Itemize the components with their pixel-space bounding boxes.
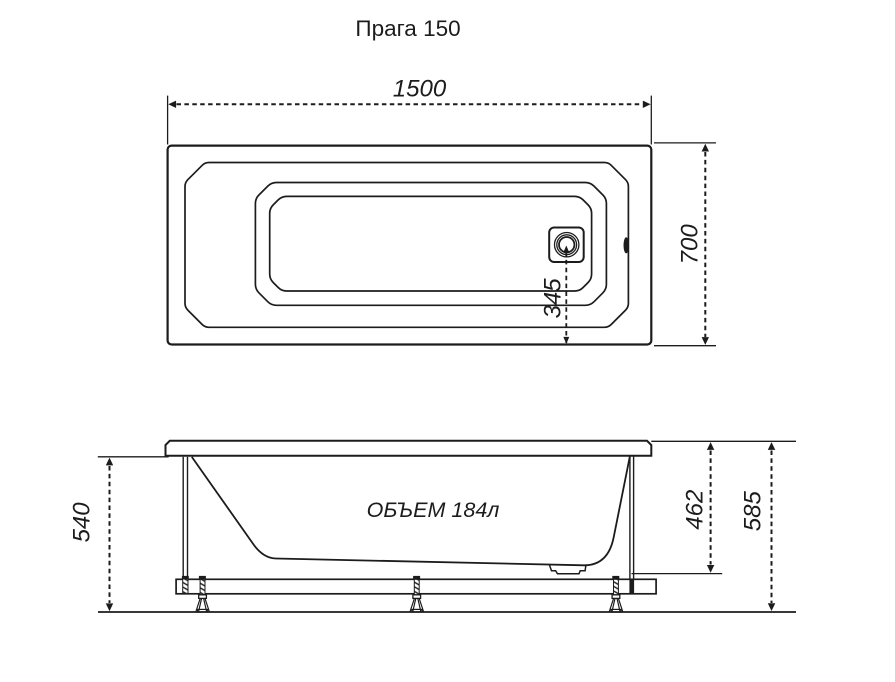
svg-text:345: 345 xyxy=(540,278,567,319)
svg-text:1500: 1500 xyxy=(393,76,447,103)
svg-text:700: 700 xyxy=(677,224,704,265)
svg-text:462: 462 xyxy=(682,490,709,530)
svg-text:ОБЪЕМ 184л: ОБЪЕМ 184л xyxy=(367,498,500,522)
svg-text:585: 585 xyxy=(740,491,767,532)
svg-text:540: 540 xyxy=(69,502,96,543)
svg-text:Прага 150: Прага 150 xyxy=(355,16,460,41)
